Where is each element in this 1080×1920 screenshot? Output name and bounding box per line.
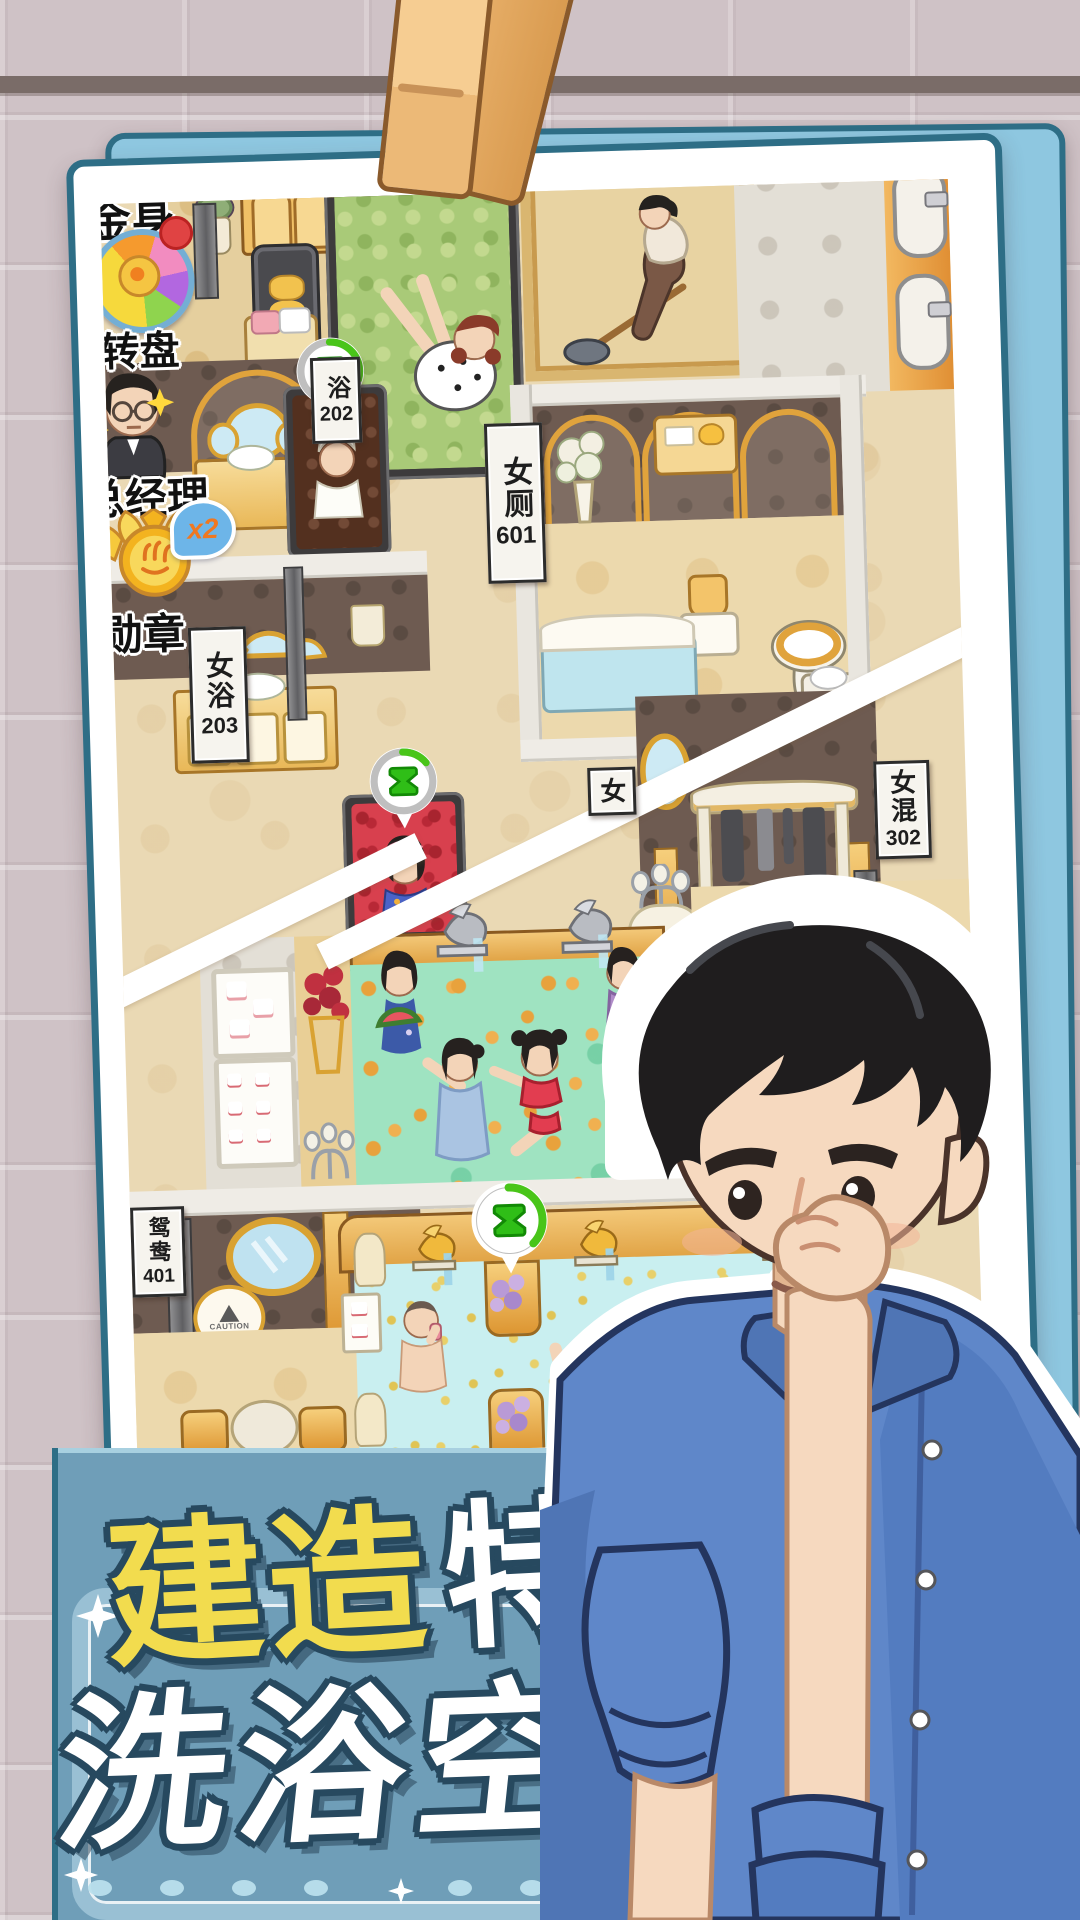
room-sign-label: 浴	[323, 374, 348, 401]
room-sign-number: 302	[886, 826, 922, 851]
dot	[448, 1880, 472, 1896]
medal-multiplier-bubble: x2	[169, 498, 237, 560]
manager-avatar-button[interactable]	[100, 358, 184, 481]
menu-box	[341, 1292, 383, 1353]
room-sign-601: 女厕 601	[484, 422, 547, 584]
dessert-frame	[211, 967, 296, 1059]
room-sign-label: 女混	[888, 768, 916, 825]
faucet	[924, 191, 948, 208]
room-sign-label: 女厕	[499, 456, 531, 521]
room-sign-label: 女	[598, 777, 625, 806]
faucet	[927, 301, 951, 318]
room-sign-number: 203	[201, 712, 238, 739]
room-sign-302: 女混 302	[873, 760, 932, 860]
room-sign-number: 202	[320, 402, 354, 426]
dot	[304, 1880, 328, 1896]
gold-shelf	[653, 413, 739, 475]
room-sign-label: 鸳鸯	[146, 1216, 169, 1265]
purple-bouquet	[488, 1390, 544, 1446]
room-sign-label: 女浴	[204, 651, 234, 712]
tulip-candelabra	[298, 1082, 359, 1184]
fish-fountain-gold	[388, 1216, 474, 1290]
rose-stand	[295, 957, 357, 1079]
stool	[298, 1405, 347, 1452]
room-sign-number: 401	[143, 1265, 175, 1288]
room-sign-401: 鸳鸯 401	[130, 1206, 187, 1298]
room-sign-202: 浴 202	[310, 357, 363, 444]
room-sign-number: 601	[496, 521, 537, 550]
dot	[88, 1880, 112, 1896]
white-flower-bouquet	[547, 425, 620, 537]
wall-lamp	[353, 1232, 387, 1287]
medal-label: 勋章	[100, 599, 204, 664]
sink	[895, 273, 952, 371]
dot	[232, 1880, 256, 1896]
dot	[160, 1880, 184, 1896]
thinking-man-character	[540, 850, 1080, 1920]
timer-bubble-203[interactable]	[362, 742, 445, 834]
spin-wheel-button[interactable]	[100, 228, 183, 323]
grey-damask-wall	[733, 179, 890, 395]
medal-button[interactable]: x2	[100, 507, 226, 611]
medal-multiplier: x2	[187, 513, 219, 546]
dessert-pillar	[199, 937, 302, 1195]
bathing-man-drinking	[378, 1288, 461, 1408]
wet-floor-icon	[219, 1305, 239, 1323]
dessert-frame	[214, 1057, 299, 1169]
clothespin	[360, 0, 580, 220]
sink-counter	[883, 179, 954, 391]
elevator-door-bar	[192, 203, 219, 300]
towel-hook	[350, 604, 385, 647]
room-sign-partial: 女	[587, 767, 636, 816]
